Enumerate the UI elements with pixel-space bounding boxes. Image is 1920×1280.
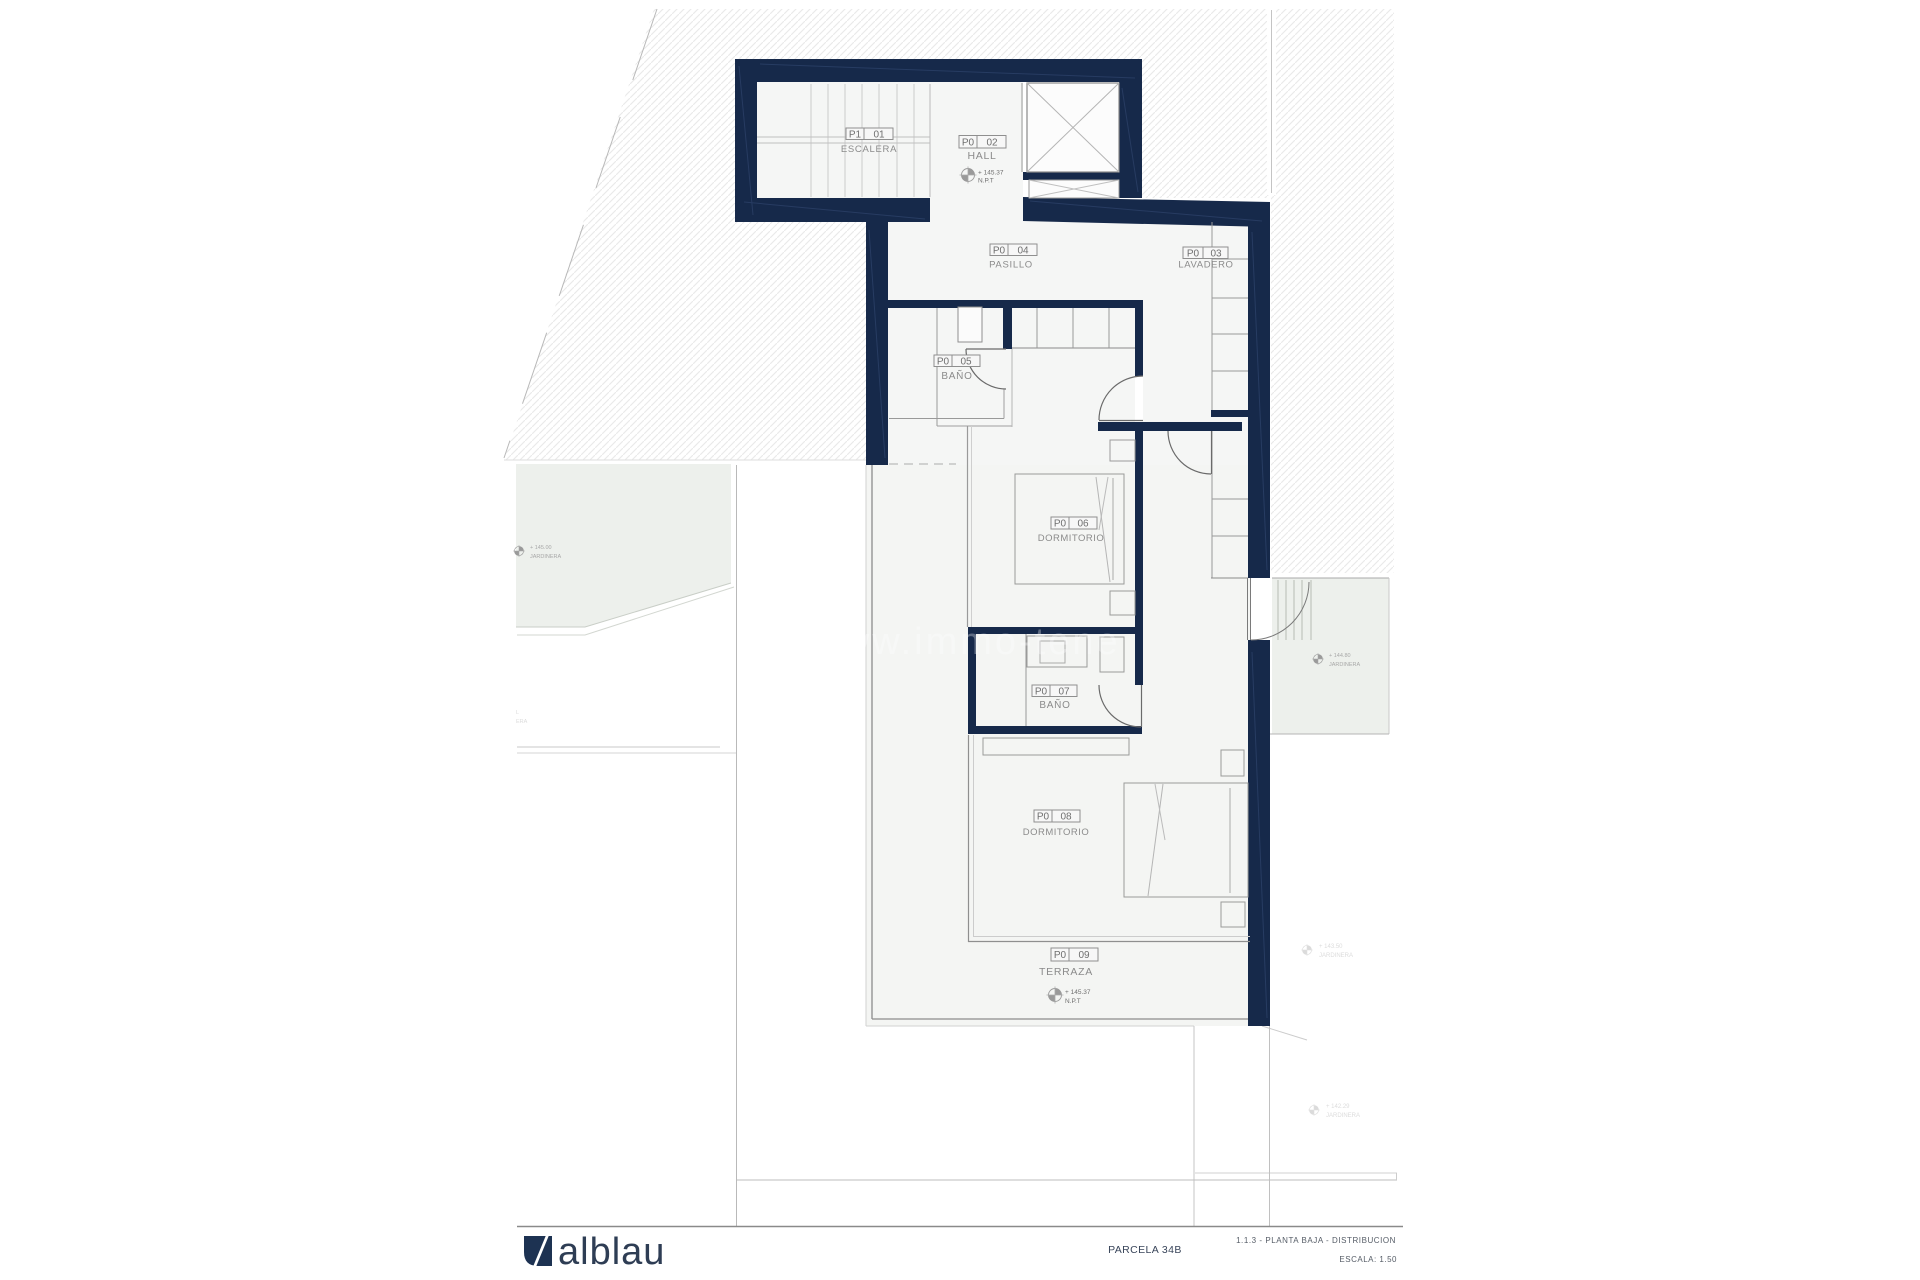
svg-text:P0: P0 [1035,687,1048,698]
svg-text:+ 144.80: + 144.80 [1329,653,1351,659]
svg-text:09: 09 [1078,950,1090,961]
svg-text:HALL: HALL [967,150,996,162]
svg-text:JARDINERA: JARDINERA [1329,662,1361,668]
svg-text:+ 145.37: + 145.37 [978,170,1004,177]
svg-text:ESCALA: 1.50: ESCALA: 1.50 [1339,1255,1397,1264]
svg-text:DORMITORIO: DORMITORIO [1038,533,1105,544]
svg-text:N.P.T: N.P.T [978,178,994,185]
svg-text:P0: P0 [1054,519,1067,530]
svg-text:P0: P0 [937,357,950,368]
svg-text:L: L [516,710,519,716]
svg-text:+ 142.29: + 142.29 [1326,1104,1350,1110]
svg-text:N.P.T: N.P.T [1065,998,1081,1005]
svg-text:04: 04 [1017,246,1029,257]
svg-text:BAÑO: BAÑO [941,369,972,382]
svg-text:06: 06 [1077,519,1089,530]
svg-text:alblau: alblau [558,1231,665,1273]
svg-text:ERA: ERA [516,719,528,725]
svg-text:P0: P0 [1037,812,1050,823]
svg-text:PASILLO: PASILLO [989,260,1033,271]
svg-text:+ 143.50: + 143.50 [1319,944,1343,950]
svg-text:DORMITORIO: DORMITORIO [1023,827,1090,838]
svg-text:TERRAZA: TERRAZA [1039,966,1093,978]
svg-text:ESCALERA: ESCALERA [841,144,897,155]
svg-text:03: 03 [1210,249,1222,260]
svg-text:www.immo-tene: www.immo-tene [810,621,1120,663]
svg-text:02: 02 [986,138,998,149]
svg-text:P0: P0 [1054,950,1067,961]
svg-text:P0: P0 [1187,249,1200,260]
svg-text:P1: P1 [849,130,862,141]
svg-text:PARCELA 34B: PARCELA 34B [1108,1244,1182,1256]
svg-text:P0: P0 [962,138,975,149]
svg-text:BAÑO: BAÑO [1039,698,1070,711]
svg-text:LAVADERO: LAVADERO [1178,260,1233,271]
svg-text:JARDINERA: JARDINERA [1319,953,1353,959]
svg-text:P0: P0 [993,246,1006,257]
svg-text:05: 05 [960,357,972,368]
svg-text:JARDINERA: JARDINERA [530,554,562,560]
svg-text:01: 01 [873,130,885,141]
svg-text:+ 145.00: + 145.00 [530,545,552,551]
svg-text:1.1.3 - PLANTA BAJA - DISTRIB: 1.1.3 - PLANTA BAJA - DISTRIBUCION [1236,1236,1396,1245]
svg-text:08: 08 [1060,812,1072,823]
svg-text:+ 145.37: + 145.37 [1065,989,1091,996]
svg-text:07: 07 [1058,687,1070,698]
svg-text:JARDINERA: JARDINERA [1326,1113,1360,1119]
